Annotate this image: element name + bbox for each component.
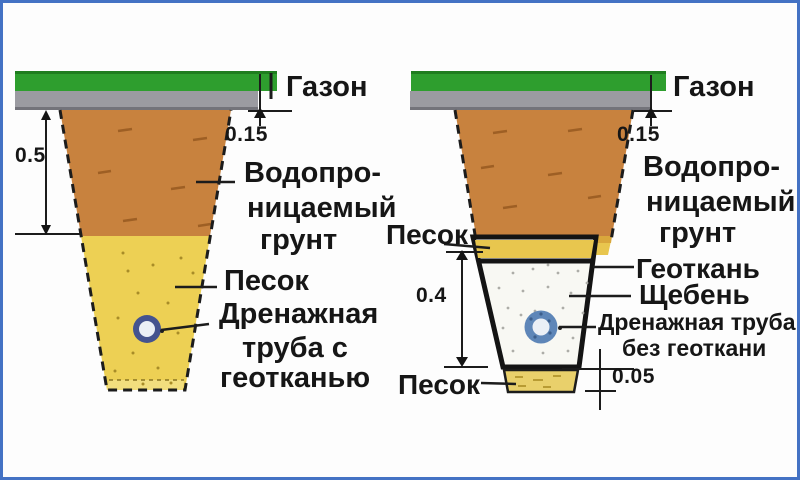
- right-sand-bottom-label: Песок: [398, 370, 480, 399]
- left-depth-dim-value: 0.5: [15, 145, 46, 167]
- right-lawn-top-edge: [411, 71, 666, 74]
- left-soil-label-line2: ницаемый: [247, 193, 396, 223]
- right-soil-region: [455, 110, 633, 236]
- left-lawn-label: Газон: [286, 72, 367, 102]
- right-gravel-arrow-down: [456, 357, 468, 367]
- left-soil-label-line1: Водопро-: [244, 158, 381, 188]
- left-drain-pipe-bore: [139, 321, 155, 337]
- left-soil-label-line3: грунт: [260, 225, 337, 255]
- right-sandbed-dim-value: 0.05: [612, 366, 655, 388]
- left-soil-region: [60, 110, 231, 236]
- right-drain-pipe-bore: [533, 319, 550, 336]
- drainage-diagram-figure: Газон 0.15 0.5 Водопро- ницаемый грунт П…: [0, 0, 800, 480]
- left-base-bottom-edge: [15, 107, 258, 110]
- left-lawn-top-edge: [15, 71, 277, 74]
- right-sand-inside-band: [475, 240, 594, 258]
- left-sand-label: Песок: [224, 266, 309, 296]
- left-depth-arrow-up: [41, 110, 51, 120]
- right-pipe-label-line2: без геоткани: [622, 336, 766, 360]
- right-soil-label-line1: Водопро-: [643, 152, 780, 182]
- right-base-bottom-edge: [410, 107, 651, 110]
- left-pipe-label-line3: геотканью: [220, 363, 370, 393]
- left-pipe-label-line2: труба с: [242, 333, 348, 363]
- left-sand-region: [81, 236, 210, 390]
- right-gravel-dim-value: 0.4: [416, 285, 447, 307]
- left-toplayer-dim-value: 0.15: [225, 124, 268, 146]
- left-pipe-label-line1: Дренажная: [219, 299, 378, 329]
- right-lawn-label: Газон: [673, 72, 754, 102]
- right-gravel-label: Щебень: [639, 280, 750, 309]
- right-soil-label-line2: ницаемый: [646, 187, 795, 217]
- right-soil-label-line3: грунт: [659, 218, 736, 248]
- right-pipe-label-line1: Дренажная труба: [598, 310, 796, 334]
- right-sand-top-label: Песок: [386, 220, 468, 249]
- right-toplayer-dim-value: 0.15: [617, 124, 660, 146]
